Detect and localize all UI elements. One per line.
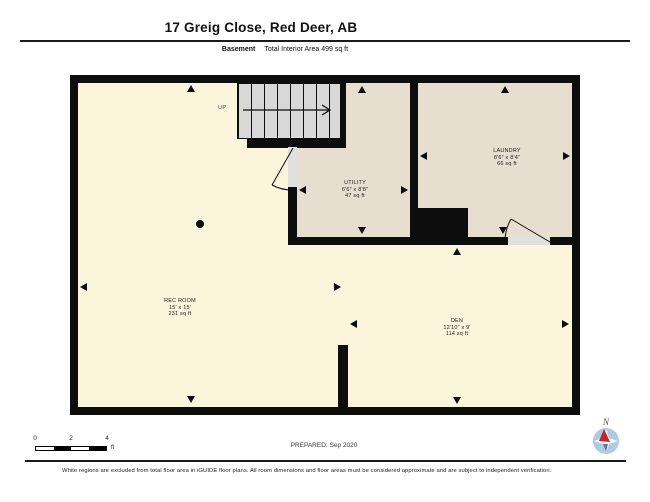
measure-arrow-right-icon xyxy=(563,152,570,160)
measure-arrow-down-icon xyxy=(453,397,461,404)
plan-glyph-overlay xyxy=(0,0,650,502)
measure-arrow-up-icon xyxy=(501,86,509,93)
measure-arrow-left-icon xyxy=(80,283,87,291)
disclaimer-text: White regions are excluded from total fl… xyxy=(62,468,551,474)
scale-segment xyxy=(54,447,72,450)
measure-arrow-left-icon xyxy=(420,152,427,160)
measure-arrow-right-icon xyxy=(401,186,408,194)
measure-arrow-up-icon xyxy=(187,85,195,92)
scale-segment xyxy=(71,447,89,450)
measure-arrow-up-icon xyxy=(358,86,366,93)
measure-arrow-left-icon xyxy=(299,186,306,194)
scale-tick-label: 0 xyxy=(33,435,37,442)
floor-plan-page: 17 Greig Close, Red Deer, AB Basement To… xyxy=(0,0,650,502)
measure-arrow-left-icon xyxy=(350,320,357,328)
measure-arrow-down-icon xyxy=(358,227,366,234)
utility-door-icon xyxy=(272,148,293,190)
compass-icon: N xyxy=(587,413,627,459)
measurement-arrows xyxy=(80,85,570,404)
scale-segment xyxy=(89,447,107,450)
scale-tick-label: 4 xyxy=(105,435,109,442)
prepared-date-label: PREPARED: Sep 2020 xyxy=(291,442,358,449)
footer-divider xyxy=(25,460,626,462)
measure-arrow-right-icon xyxy=(334,283,341,291)
laundry-door-icon xyxy=(505,219,550,242)
scale-bar xyxy=(35,446,107,451)
measure-arrow-right-icon xyxy=(562,320,569,328)
measure-arrow-down-icon xyxy=(187,396,195,403)
scale-tick-label: 2 xyxy=(69,435,73,442)
scale-unit-label: ft xyxy=(111,445,114,451)
compass-north-label: N xyxy=(602,417,610,427)
scale-segment xyxy=(36,447,54,450)
stair-up-arrow-icon xyxy=(243,105,330,115)
measure-arrow-up-icon xyxy=(453,248,461,255)
support-column-icon xyxy=(196,220,204,228)
